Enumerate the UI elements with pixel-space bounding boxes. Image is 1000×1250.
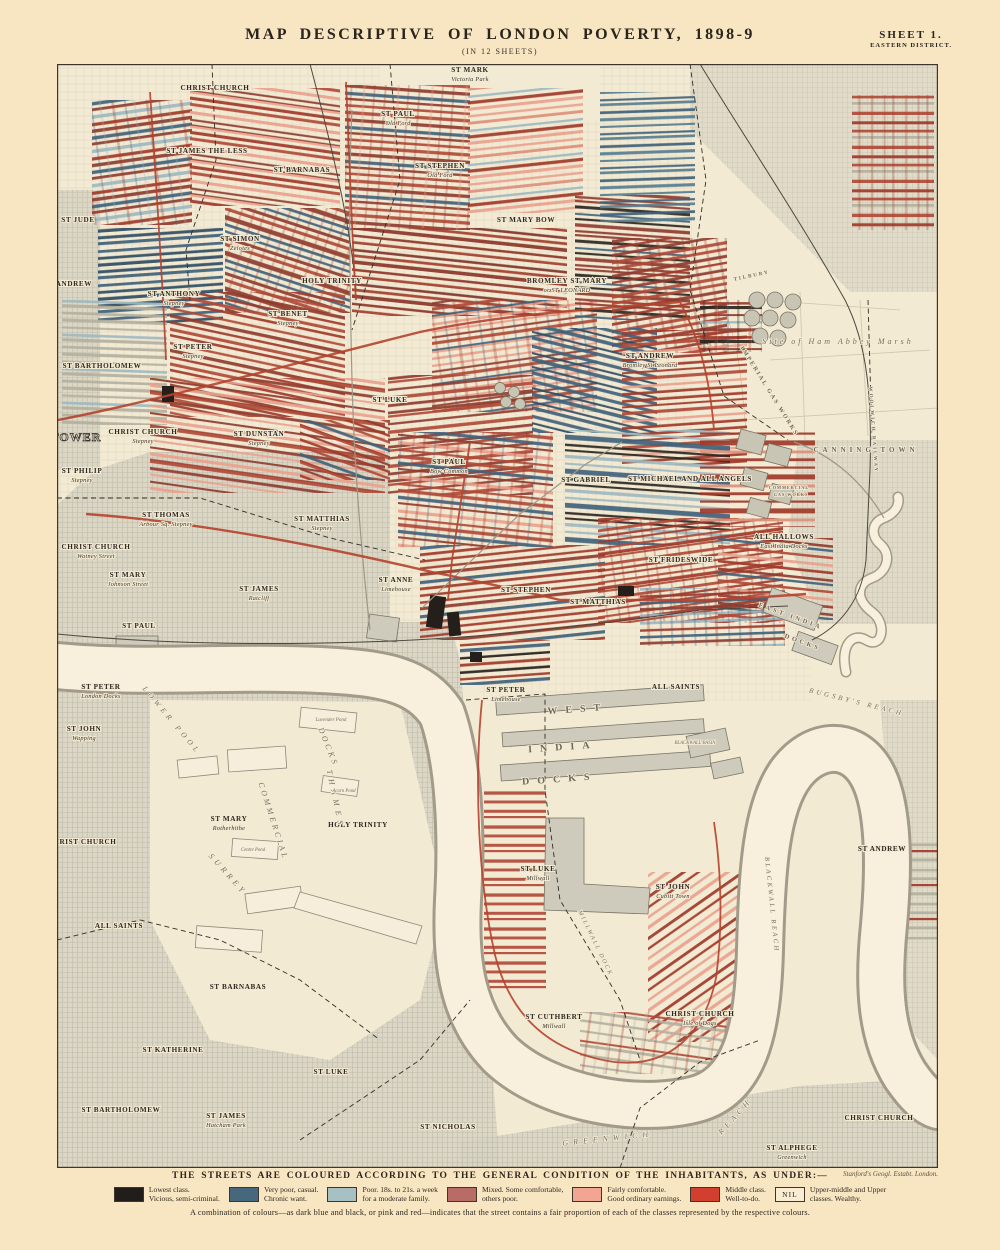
map-label: ST FRIDESWIDE [649,556,714,564]
map-label-sub: Greenwich [777,1154,807,1161]
map-frame: CHRIST CHURCHST MARKVictoria ParkST JAME… [57,64,938,1168]
map-label-sub: Watney Street [77,553,115,560]
map-label-sub: Cubitt Town [656,893,690,900]
map-label: ST LUKE [520,865,555,873]
map-label: CHRIST CHURCH [845,1114,914,1122]
legend-note: A combination of colours—as dark blue an… [0,1208,1000,1217]
map-label: ST BARTHOLOMEW [82,1106,161,1114]
map-label: ST JAMES [206,1112,246,1120]
map-label-sub: London Docks [80,693,121,700]
map-label: ST CUTHBERT [525,1013,582,1021]
legend-item: Middle class.Well-to-do. [690,1186,766,1203]
sheet-number: SHEET 1. [870,29,952,41]
legend-item: Lowest class.Vicious, semi-criminal. [114,1186,220,1203]
map-label: ST BARNABAS [210,983,267,991]
map-label: ST PAUL [381,110,415,118]
map-label: TOWER [57,430,101,444]
map-label: ST DUNSTAN [234,430,285,438]
map-label: ST LUKE [313,1068,348,1076]
map-label-sub: Zelotes [230,245,250,252]
map-label: BROMLEY ST MARY [527,277,607,285]
map-label-sub: Stepney [248,440,269,447]
map-label-sub: Arbour Sq. Stepney [138,521,192,528]
map-label: Centre Pond [241,848,266,853]
map-label: ST PHILIP [62,467,103,475]
map-label-sub: Millwall [525,875,549,882]
map-label: ST MARY [211,815,248,823]
sheet-district: EASTERN DISTRICT. [870,42,952,49]
map-label-sub: Limehouse [380,586,411,593]
map-label-sub: Bromley St Leonard [623,362,678,369]
map-label: ST ANDREW [626,352,674,360]
map-label: CANNING TOWN [813,446,918,454]
map-label-sub: Stepney [311,525,332,532]
map-label: Acorn Pond [331,789,356,794]
legend-swatch-nil: NIL [775,1187,805,1202]
map-canvas: CHRIST CHURCHST MARKVictoria ParkST JAME… [57,64,938,1168]
map-label: ALL HALLOWS [754,533,814,541]
map-label: ST KATHERINE [142,1046,203,1054]
sheet-label: SHEET 1. EASTERN DISTRICT. [870,29,952,49]
legend-swatch [114,1187,144,1202]
legend-swatch [327,1187,357,1202]
map-label: ST ALPHEGE [766,1144,817,1152]
map-label: ST JAMES [239,585,279,593]
legend-item-label: Upper-middle and Upperclasses. Wealthy. [810,1186,886,1203]
map-label-sub: East India Docks [759,543,808,550]
map-label: ST PETER [81,683,120,691]
map-label: CHRIST CHURCH [181,84,250,92]
legend-item: Mixed. Some comfortable,others poor. [447,1186,563,1203]
publisher-imprint: Stanford's Geogl. Estabt. London. [843,1170,938,1178]
legend-item-label: Fairly comfortable.Good ordinary earning… [607,1186,681,1203]
map-label: ST PAUL [432,458,466,466]
map-label-sub: Limehouse [490,696,521,703]
map-label: CHRIST CHURCH [62,543,131,551]
map-label: Lavender Pond [315,718,347,723]
map-label: HOLY TRINITY [302,277,362,285]
legend-swatch [572,1187,602,1202]
legend-items: Lowest class.Vicious, semi-criminal.Very… [0,1186,1000,1203]
map-label: ST JOHN [67,725,102,733]
map-label-sub: Isle of Dogs [682,1020,717,1027]
map-label: BLACKWALL BASIN [674,741,716,746]
map-label: CHRIST CHURCH [666,1010,735,1018]
legend-item-label: Poor. 18s. to 21s. a weekfor a moderate … [362,1186,438,1203]
map-label: ST MARY [110,571,147,579]
map-label: COMMERCIAL [769,485,809,490]
legend-swatch [229,1187,259,1202]
legend-item: Very poor, casual.Chronic want. [229,1186,319,1203]
map-label-sub: Wapping [72,735,96,742]
map-label: ST PETER [173,343,212,351]
map-label-sub: Stepney [71,477,92,484]
legend-swatch [690,1187,720,1202]
map-label-sub: Victoria Park [451,76,488,83]
map-label-sub: Hatcham Park [205,1122,246,1129]
map-label: ST MATTHIAS [570,598,626,606]
map-label: ST ANDREW [57,280,92,288]
map-label-sub: Stepney [182,353,203,360]
map-label: ST BARNABAS [274,166,331,174]
map-label: ST GABRIEL [561,476,611,484]
legend-item: NILUpper-middle and Upperclasses. Wealth… [775,1186,886,1203]
map-label: ST STEPHEN [415,162,465,170]
map-label: GAS WORKS [774,492,809,497]
map-label: ST JOHN [656,883,691,891]
map-label: ST ANNE [379,576,414,584]
legend-item-label: Very poor, casual.Chronic want. [264,1186,319,1203]
legend-item-label: Mixed. Some comfortable,others poor. [482,1186,563,1203]
map-label-sub: Ratcliff [248,595,271,602]
map-sheet: MAP DESCRIPTIVE OF LONDON POVERTY, 1898-… [0,0,1000,1250]
map-label-sub: Old Ford [427,172,453,179]
map-label: ST PETER [486,686,525,694]
map-label-sub: Johnson Street [108,581,149,588]
legend-swatch [447,1187,477,1202]
map-label: ST PAUL [122,622,156,630]
map-label: ST LUKE [372,396,407,404]
legend-item-label: Lowest class.Vicious, semi-criminal. [149,1186,220,1203]
legend-item-label: Middle class.Well-to-do. [725,1186,766,1203]
map-label-sub: Rotherhithe [212,825,245,832]
map-label-sub: Stepney [132,438,153,445]
map-label-sub: Bow Common [430,468,468,475]
map-label-sub: Stepney [163,300,184,307]
map-label: ST BENET [268,310,308,318]
map-label: ST MATTHIAS [294,515,350,523]
map-label: ST MARK [451,66,488,74]
map-label: ST ANDREW [858,845,906,853]
map-label: ST THOMAS [142,511,190,519]
map-label: ST ANTHONY [148,290,201,298]
page-title: MAP DESCRIPTIVE OF LONDON POVERTY, 1898-… [0,26,1000,44]
page-subtitle: (IN 12 SHEETS) [0,47,1000,56]
map-label: CHRIST CHURCH [57,838,116,846]
map-label: ST SIMON [220,235,260,243]
map-label: ALL SAINTS [95,922,143,930]
map-label: ST BARTHOLOMEW [63,362,142,370]
map-label: ALL SAINTS [652,683,700,691]
map-label: ST STEPHEN [501,586,551,594]
legend-item: Poor. 18s. to 21s. a weekfor a moderate … [327,1186,438,1203]
map-label-sub: Millwall [541,1023,565,1030]
map-label-sub: or ST LEONARD [544,287,591,294]
map-label-sub: Old Ford [385,120,411,127]
map-label: ST MICHAEL AND ALL ANGELS [628,475,752,483]
map-label: ST JUDE [61,216,94,224]
map-label-sub: Stepney [277,320,298,327]
map-label: Site of Ham Abbey Marsh [762,337,914,346]
map-label: ST JAMES THE LESS [166,147,247,155]
legend-item: Fairly comfortable.Good ordinary earning… [572,1186,681,1203]
map-label: CHRIST CHURCH [109,428,178,436]
map-label: ST MARY BOW [497,216,555,224]
map-label: ST NICHOLAS [420,1123,475,1131]
